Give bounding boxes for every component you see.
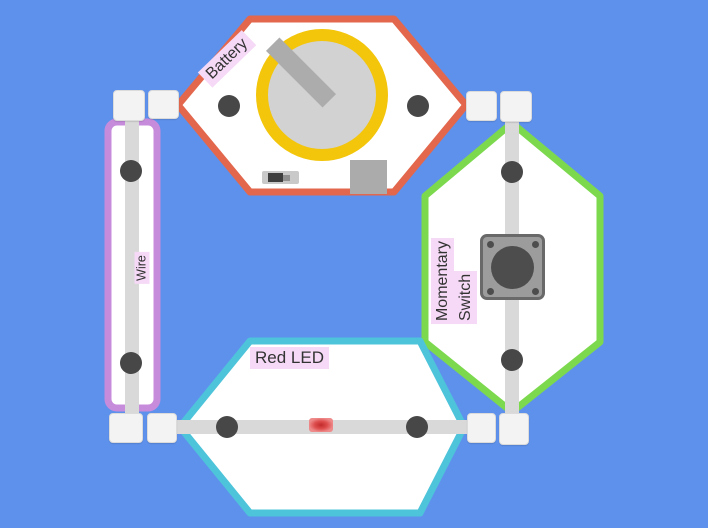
wire-top-connector[interactable]	[113, 90, 145, 121]
led-right-connector[interactable]	[467, 413, 496, 443]
button-screw-icon	[487, 241, 494, 248]
wire-top-terminal	[120, 160, 142, 182]
push-button-cap[interactable]	[491, 246, 534, 289]
wire-label: Wire	[135, 252, 150, 284]
momentary-switch-label-line1: Momentary	[431, 238, 454, 324]
led-right-terminal	[406, 416, 428, 438]
switch-top-connector[interactable]	[500, 91, 532, 122]
battery-left-connector[interactable]	[148, 90, 179, 119]
led-left-terminal	[216, 416, 238, 438]
battery-terminal-block	[350, 160, 387, 194]
button-screw-icon	[487, 288, 494, 295]
wire-bottom-connector[interactable]	[109, 413, 143, 443]
power-slide-switch-slot	[283, 175, 290, 181]
led-left-connector[interactable]	[147, 413, 177, 443]
momentary-switch-label-line2: Switch	[454, 271, 477, 324]
button-screw-icon	[532, 241, 539, 248]
red-led-label: Red LED	[250, 347, 329, 369]
battery-right-terminal	[407, 95, 429, 117]
battery-right-connector[interactable]	[466, 91, 497, 121]
switch-top-terminal	[501, 161, 523, 183]
button-screw-icon	[532, 288, 539, 295]
switch-bottom-connector[interactable]	[499, 413, 529, 445]
momentary-switch-label: Momentary Switch	[431, 238, 477, 324]
led-lamp	[309, 418, 333, 432]
battery-left-terminal	[218, 95, 240, 117]
circuit-canvas: Battery Momentary Switch Red LED Wire	[0, 0, 708, 528]
wire-bottom-terminal	[120, 352, 142, 374]
switch-bottom-terminal	[501, 349, 523, 371]
power-slide-switch-knob[interactable]	[268, 173, 283, 182]
